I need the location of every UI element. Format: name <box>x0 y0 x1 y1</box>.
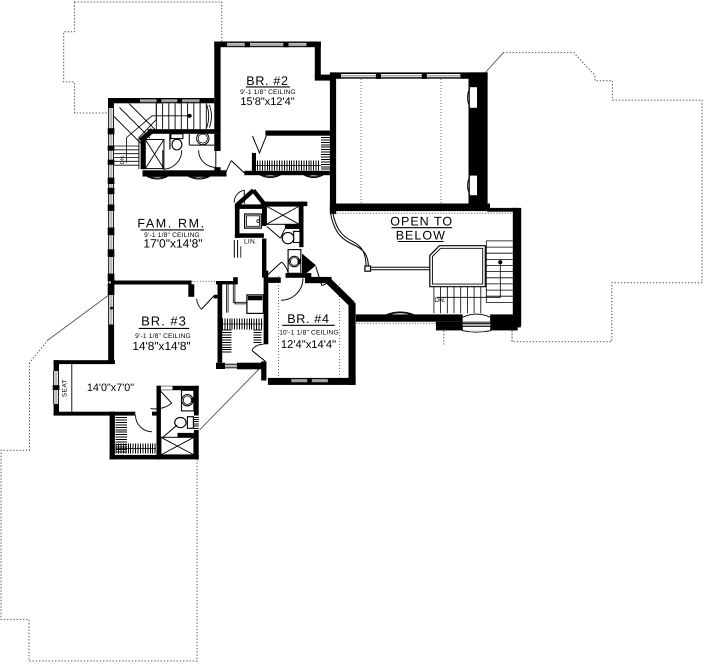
svg-text:SEAT: SEAT <box>61 379 68 397</box>
svg-text:LIN.: LIN. <box>244 239 257 246</box>
svg-text:BR. #3: BR. #3 <box>141 314 187 329</box>
svg-text:9'-1 1/8" CEILING: 9'-1 1/8" CEILING <box>240 89 296 96</box>
svg-text:17'0"x14'8": 17'0"x14'8" <box>143 237 202 251</box>
svg-text:12'4"x14'4": 12'4"x14'4" <box>281 339 336 351</box>
svg-text:FAM. RM.: FAM. RM. <box>137 216 205 230</box>
svg-text:BR. #4: BR. #4 <box>287 312 329 326</box>
svg-text:14'0"x7'0": 14'0"x7'0" <box>87 382 134 394</box>
svg-text:BELOW: BELOW <box>396 228 446 242</box>
svg-text:DN.: DN. <box>120 154 126 164</box>
svg-text:OPEN TO: OPEN TO <box>390 214 453 228</box>
svg-text:14'8"x14'8": 14'8"x14'8" <box>132 339 190 353</box>
svg-text:BR. #2: BR. #2 <box>246 74 288 88</box>
svg-text:10'-1 1/8" CEILING: 10'-1 1/8" CEILING <box>279 330 339 337</box>
svg-text:DN.: DN. <box>434 297 445 304</box>
svg-text:15'8"x12'4": 15'8"x12'4" <box>240 96 294 108</box>
